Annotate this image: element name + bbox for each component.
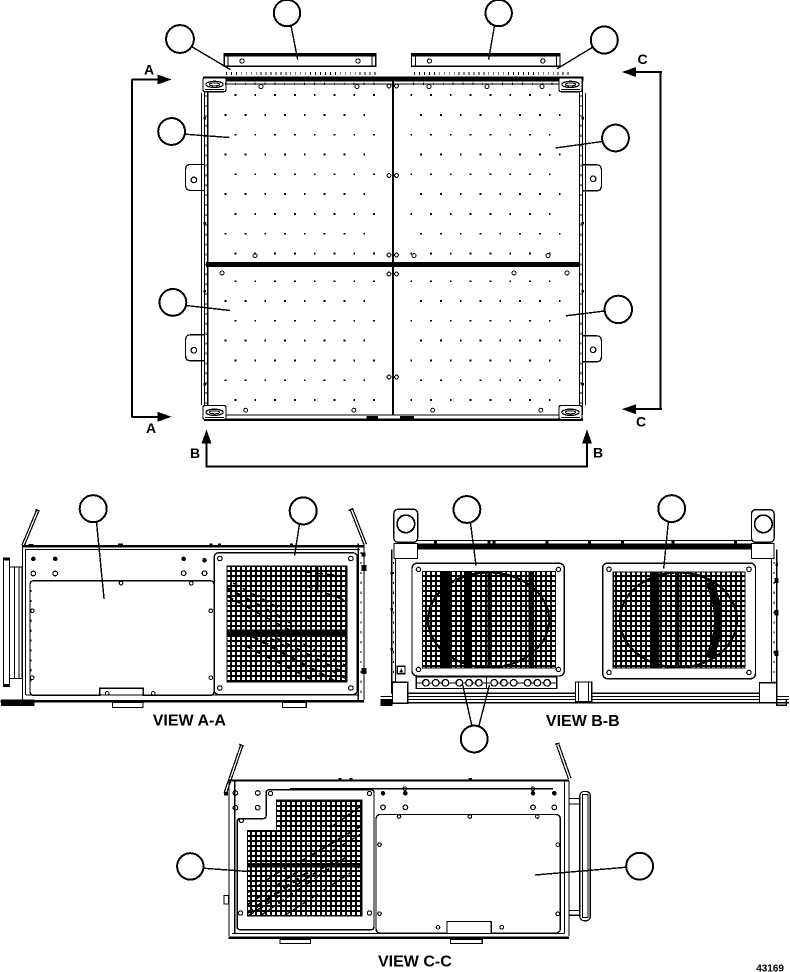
svg-text:VIEW C-C: VIEW C-C <box>378 953 452 970</box>
svg-text:C: C <box>637 51 647 67</box>
svg-text:B: B <box>593 445 603 461</box>
svg-text:VIEW B-B: VIEW B-B <box>546 713 620 730</box>
svg-text:VIEW A-A: VIEW A-A <box>153 713 227 730</box>
svg-text:A: A <box>144 62 154 78</box>
svg-text:B: B <box>190 445 200 461</box>
svg-text:A: A <box>146 420 156 436</box>
svg-text:43169: 43169 <box>756 964 784 972</box>
svg-text:C: C <box>636 414 646 430</box>
